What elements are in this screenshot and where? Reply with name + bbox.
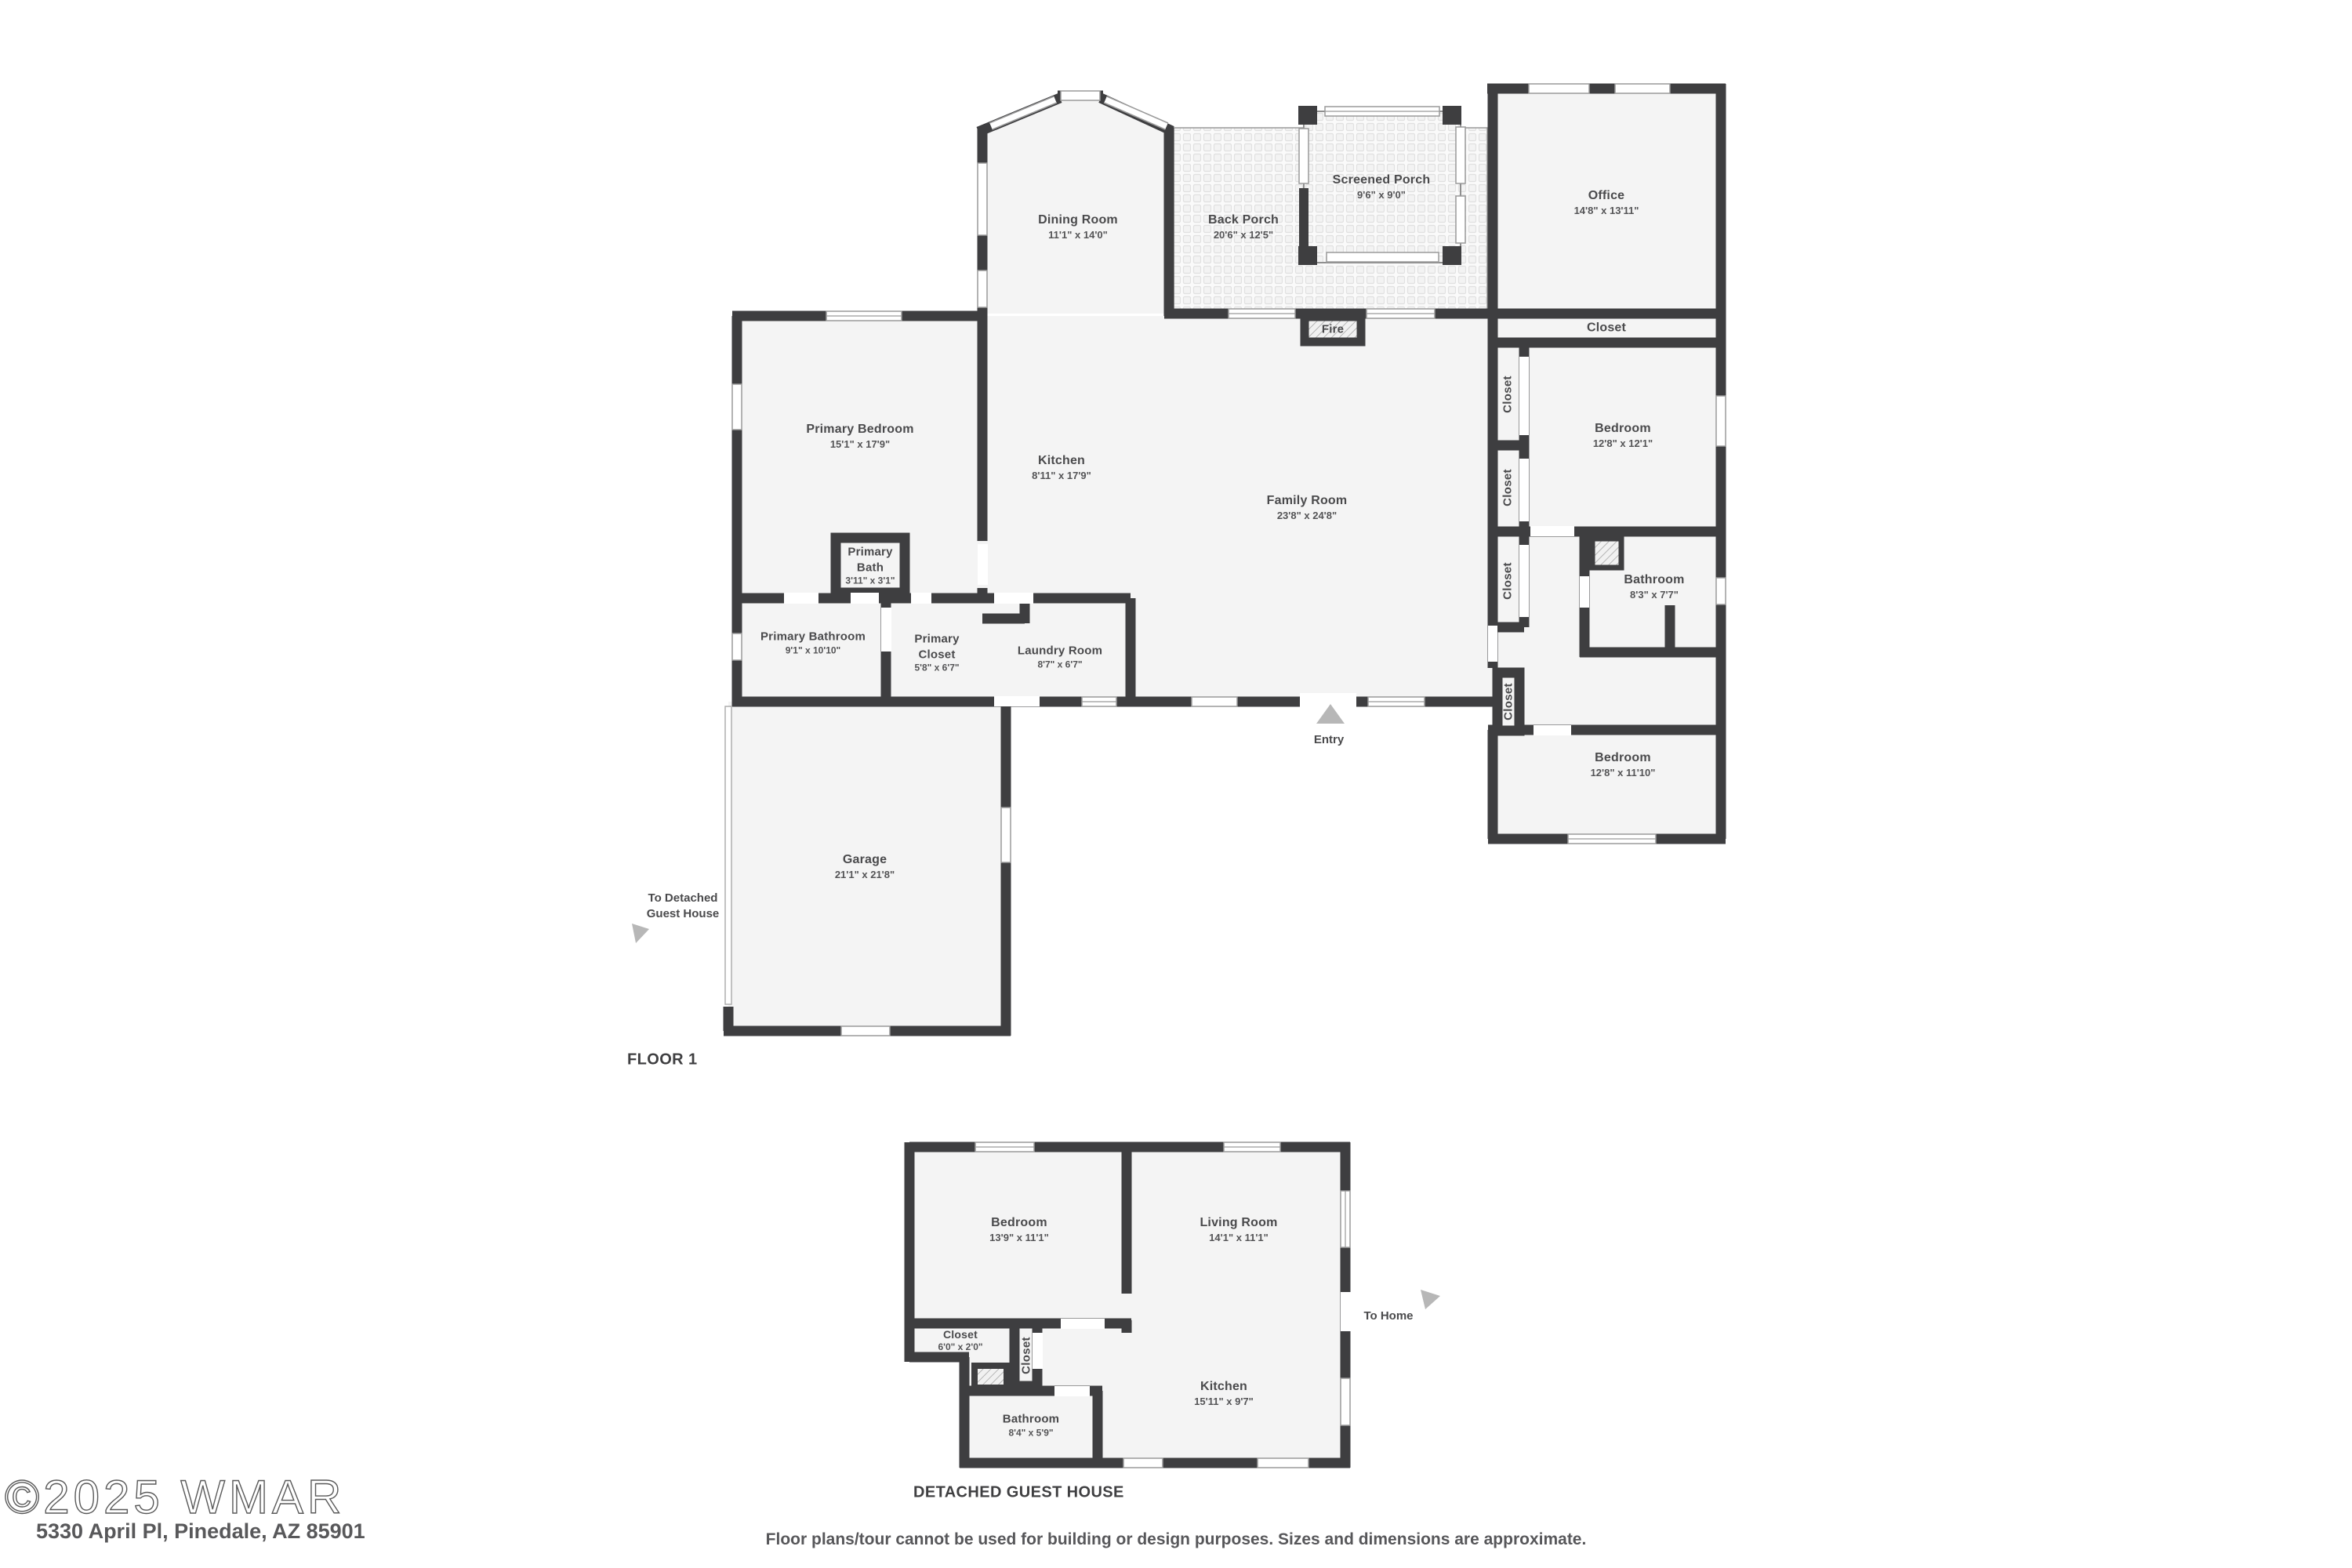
room-label-screened-porch: Screened Porch 9'6" x 9'0" <box>1333 172 1431 202</box>
closet-label-4: Closet <box>1502 683 1515 720</box>
closet-label-1: Closet <box>1501 376 1515 413</box>
room-label-back-porch: Back Porch 20'6" x 12'5" <box>1208 212 1279 242</box>
disclaimer-text: Floor plans/tour cannot be used for buil… <box>766 1530 1587 1549</box>
room-label-kitchen: Kitchen 8'11" x 17'9" <box>1032 453 1091 483</box>
room-label-bathroom: Bathroom 8'3" x 7'7" <box>1624 572 1684 602</box>
to-guest-house-label: To Detached Guest House <box>636 891 730 923</box>
closet-label-2: Closet <box>1501 469 1515 506</box>
guest-house-title: DETACHED GUEST HOUSE <box>913 1484 1124 1502</box>
room-label-dining-room: Dining Room 11'1" x 14'0" <box>1038 212 1118 242</box>
property-address: 5330 April Pl, Pinedale, AZ 85901 <box>36 1519 365 1544</box>
label-fireplace: Fire <box>1322 321 1344 337</box>
closet-label-3: Closet <box>1501 562 1515 600</box>
to-guest-house-arrow-icon <box>632 924 649 943</box>
to-home-arrow-icon <box>1421 1290 1440 1309</box>
floor-plan-page: ©2025 WMAR Dining Room 11'1" x 14'0" Bac… <box>0 0 2352 1568</box>
guest-closet-small-label: Closet <box>1020 1337 1033 1374</box>
room-label-family-room: Family Room 23'8" x 24'8" <box>1267 493 1348 523</box>
room-label-primary-closet: Primary Closet 5'8" x 6'7" <box>901 632 973 675</box>
guest-hatch-fixture <box>975 1366 1007 1388</box>
guest-room-label-bedroom: Bedroom 13'9" x 11'1" <box>989 1215 1049 1245</box>
room-label-bedroom-top: Bedroom 12'8" x 12'1" <box>1593 421 1653 451</box>
guest-room-label-living-room: Living Room 14'1" x 11'1" <box>1200 1215 1277 1245</box>
dining-room-area <box>982 96 1169 314</box>
guest-room-label-bathroom: Bathroom 8'4" x 5'9" <box>1003 1411 1059 1439</box>
room-label-primary-bedroom: Primary Bedroom 15'1" x 17'9" <box>806 422 913 452</box>
floor-plan-canvas: ©2025 WMAR <box>0 0 2352 1568</box>
shower <box>1592 539 1621 568</box>
garage-door <box>725 706 731 1004</box>
entry-label: Entry <box>1314 732 1344 748</box>
watermark-text: ©2025 WMAR <box>5 1471 345 1523</box>
guest-room-label-kitchen: Kitchen 15'11" x 9'7" <box>1194 1379 1254 1409</box>
room-label-bedroom-bottom: Bedroom 12'8" x 11'10" <box>1591 750 1656 780</box>
room-label-office: Office 14'8" x 13'11" <box>1574 188 1639 218</box>
room-label-office-closet: Closet <box>1587 321 1626 337</box>
to-home-label: To Home <box>1363 1308 1413 1324</box>
room-label-primary-bath: Primary Bath 3'11" x 3'1" <box>837 545 904 588</box>
guest-room-label-closet: Closet 6'0" x 2'0" <box>938 1327 982 1354</box>
room-label-laundry-room: Laundry Room 8'7" x 6'7" <box>1018 643 1102 670</box>
floor1-title: FLOOR 1 <box>627 1051 697 1069</box>
room-label-primary-bathroom: Primary Bathroom 9'1" x 10'10" <box>760 629 866 656</box>
room-label-garage: Garage 21'1" x 21'8" <box>835 852 895 882</box>
